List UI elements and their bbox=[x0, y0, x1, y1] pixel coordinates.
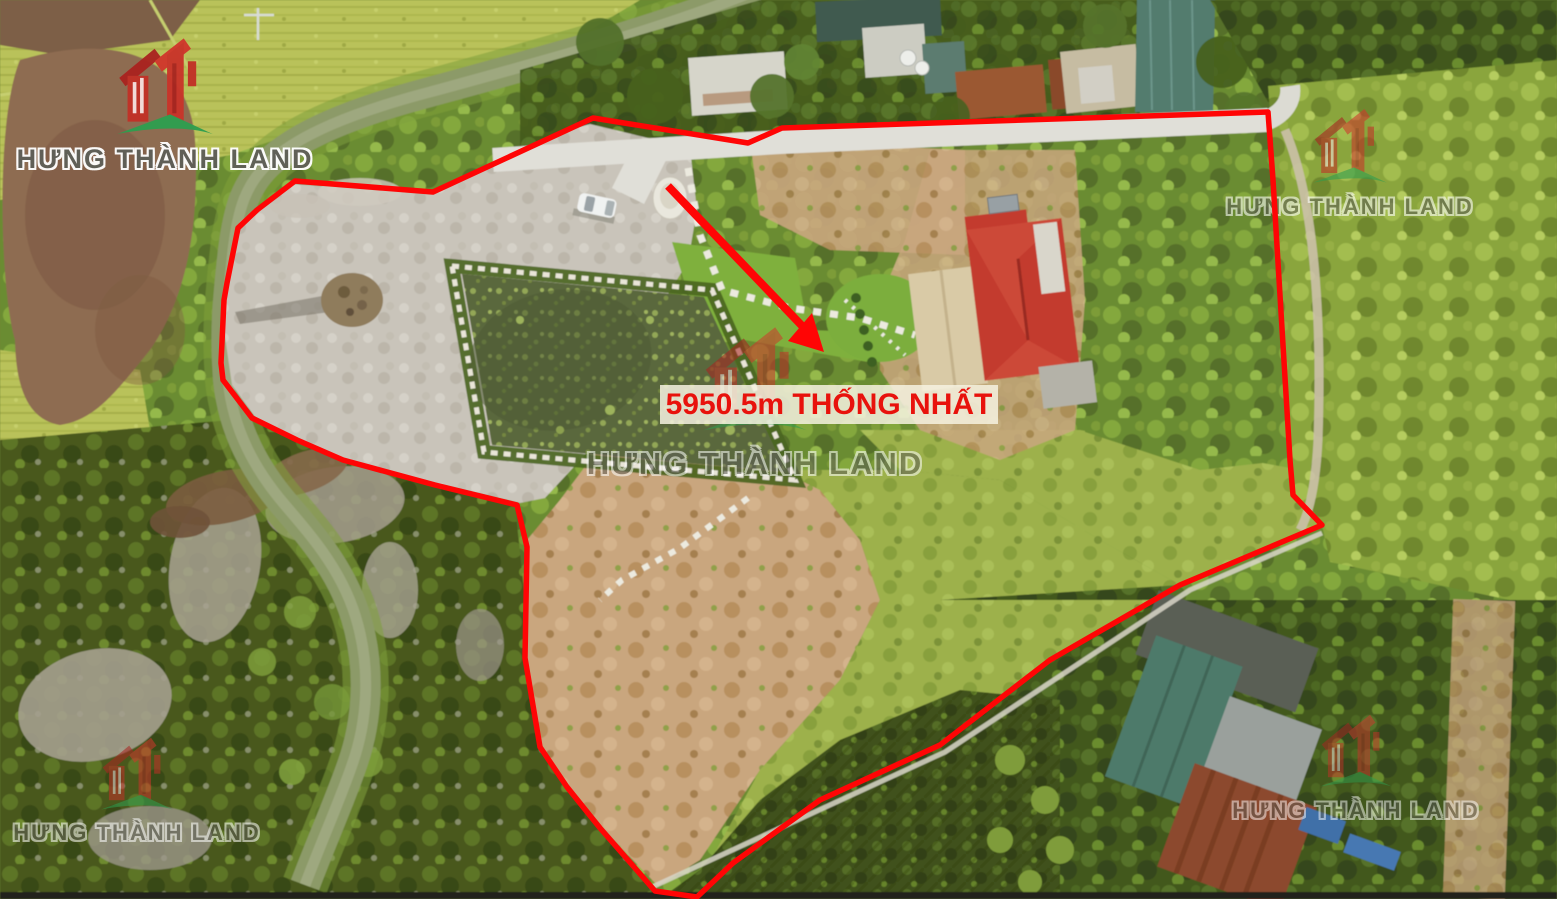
orchard bbox=[1085, 122, 1290, 470]
rubble bbox=[318, 178, 402, 206]
area-label-text: 5950.5m THỐNG NHẤT bbox=[666, 388, 993, 422]
aerial-scene bbox=[0, 0, 1557, 899]
rubble bbox=[270, 194, 330, 218]
aerial-photo: HƯNG THÀNH LAND HƯNG THÀNH LAND HƯNG THÀ… bbox=[0, 0, 1557, 899]
area-label-band: 5950.5m THỐNG NHẤT bbox=[660, 385, 998, 424]
brown-field bbox=[3, 49, 196, 425]
dirt-lane bbox=[1443, 599, 1515, 899]
bottom-strip bbox=[0, 892, 1557, 899]
water-tank bbox=[653, 177, 687, 219]
